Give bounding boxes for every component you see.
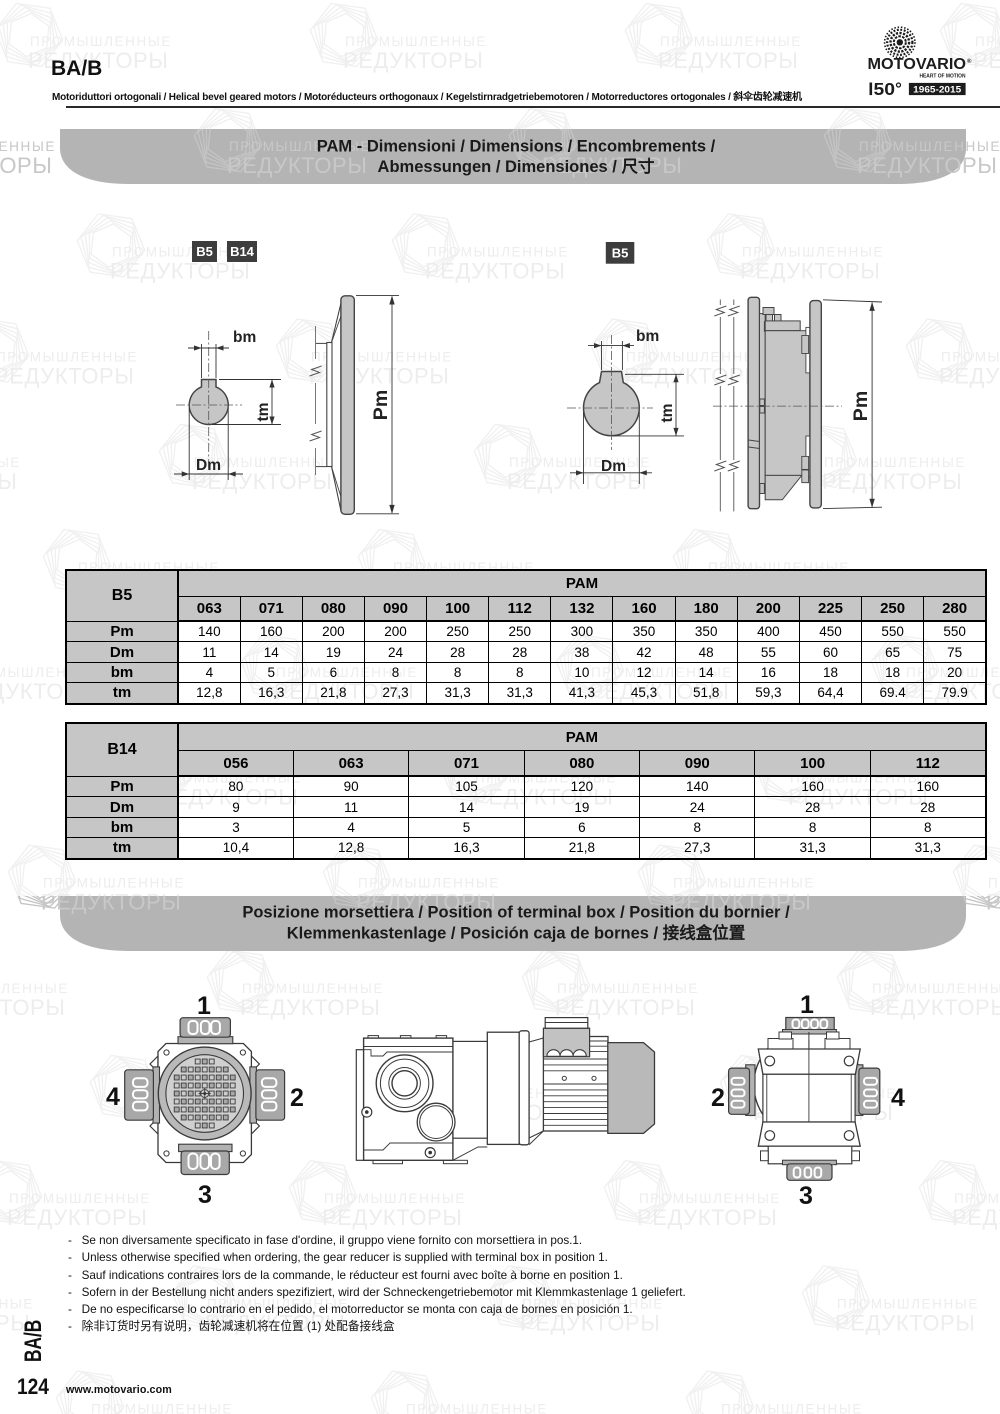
- svg-text:®: ®: [967, 58, 972, 65]
- svg-text:HEART OF MOTION: HEART OF MOTION: [920, 74, 966, 80]
- svg-text:1965-2015: 1965-2015: [913, 84, 962, 95]
- svg-text:bm: bm: [233, 329, 256, 346]
- svg-text:ПРОМЫШЛЕННЫЕ: ПРОМЫШЛЕННЫЕ: [859, 139, 1000, 154]
- svg-text:Klemmenkastenlage / Posición c: Klemmenkastenlage / Posición caja de bor…: [287, 923, 745, 943]
- svg-text:50: 50: [874, 79, 896, 99]
- svg-text:РЕДУКТОРЫ: РЕДУКТОРЫ: [227, 153, 367, 178]
- svg-text:bm: bm: [636, 328, 659, 345]
- svg-text:3: 3: [198, 1181, 212, 1209]
- svg-text:PAM - Dimensioni / Dimensions: PAM - Dimensioni / Dimensions / Encombre…: [317, 138, 716, 156]
- svg-text:Dm: Dm: [601, 458, 626, 475]
- svg-text:MOTOVARIO: MOTOVARIO: [868, 56, 967, 73]
- svg-text:1: 1: [197, 992, 211, 1020]
- svg-text:Dm: Dm: [196, 457, 221, 474]
- svg-text:3: 3: [799, 1182, 813, 1210]
- svg-text:tm: tm: [659, 404, 676, 423]
- svg-text:РЕДУКТОРЫ: РЕДУКТОРЫ: [0, 153, 52, 178]
- svg-text:B14: B14: [230, 244, 255, 259]
- svg-text:Pm: Pm: [370, 390, 392, 420]
- svg-text:Pm: Pm: [850, 391, 872, 421]
- svg-text:1: 1: [800, 991, 814, 1019]
- svg-text:B5: B5: [196, 244, 213, 259]
- svg-text:4: 4: [106, 1083, 120, 1111]
- svg-text:ПРОМЫШЛЕННЫЕ: ПРОМЫШЛЕННЫЕ: [0, 139, 56, 154]
- svg-text:Abmessungen / Dimensiones / 尺寸: Abmessungen / Dimensiones / 尺寸: [378, 156, 655, 176]
- svg-text:tm: tm: [255, 403, 272, 422]
- svg-text:РЕДУКТОРЫ: РЕДУКТОРЫ: [986, 896, 1000, 915]
- svg-text:B5: B5: [612, 246, 629, 261]
- svg-text:Posizione morsettiera / Positi: Posizione morsettiera / Position of term…: [242, 904, 790, 922]
- svg-text:РЕДУКТОРЫ: РЕДУКТОРЫ: [41, 896, 181, 915]
- svg-text:РЕДУКТОРЫ: РЕДУКТОРЫ: [857, 153, 997, 178]
- svg-text:4: 4: [891, 1084, 905, 1112]
- svg-text:2: 2: [711, 1084, 725, 1112]
- svg-text:2: 2: [290, 1084, 304, 1112]
